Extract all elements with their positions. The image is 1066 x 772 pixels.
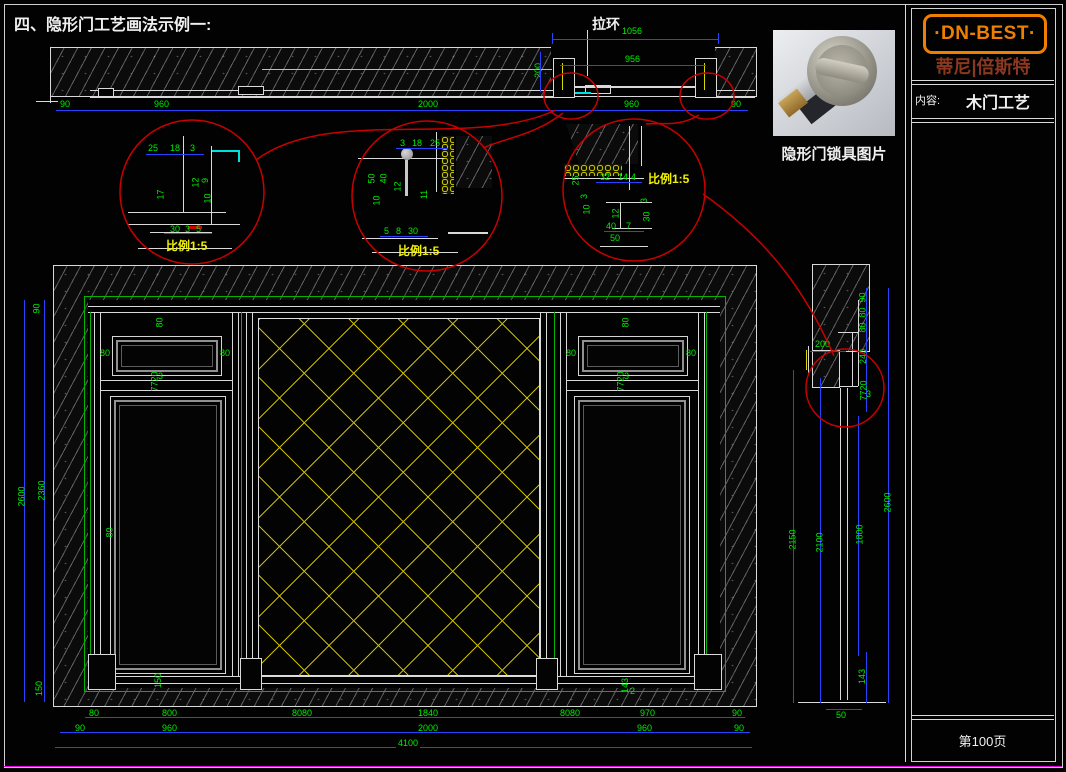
lock-callout-circle bbox=[680, 73, 734, 119]
divider bbox=[912, 80, 1054, 81]
leader-curve bbox=[483, 113, 563, 148]
brand-cn: 蒂尼|倍斯特 bbox=[913, 53, 1053, 79]
detail-circle-2 bbox=[352, 121, 502, 271]
section-callout-circle bbox=[806, 349, 884, 427]
divider bbox=[912, 719, 1054, 720]
page-number: 第100页 bbox=[911, 731, 1054, 750]
leader-curve bbox=[256, 110, 556, 160]
logo-text: ·DN-BEST· bbox=[934, 23, 1036, 45]
red-annotation-overlay bbox=[0, 0, 1066, 772]
detail-circle-3 bbox=[563, 119, 705, 261]
divider bbox=[912, 118, 1054, 119]
logo-box: ·DN-BEST· bbox=[923, 14, 1047, 54]
detail-circle-1 bbox=[120, 120, 264, 264]
cad-sheet: 四、隐形门工艺画法示例一: 拉环 1056 956 200 90 960 200… bbox=[0, 0, 1066, 772]
divider bbox=[912, 122, 1054, 123]
divider bbox=[912, 715, 1054, 716]
content-label: 内容: bbox=[915, 92, 940, 108]
divider bbox=[912, 84, 1054, 85]
content-value: 木门工艺 bbox=[945, 89, 1051, 113]
leader-curve bbox=[703, 194, 834, 356]
panel-border bbox=[905, 5, 906, 762]
leader-curve bbox=[646, 115, 699, 124]
